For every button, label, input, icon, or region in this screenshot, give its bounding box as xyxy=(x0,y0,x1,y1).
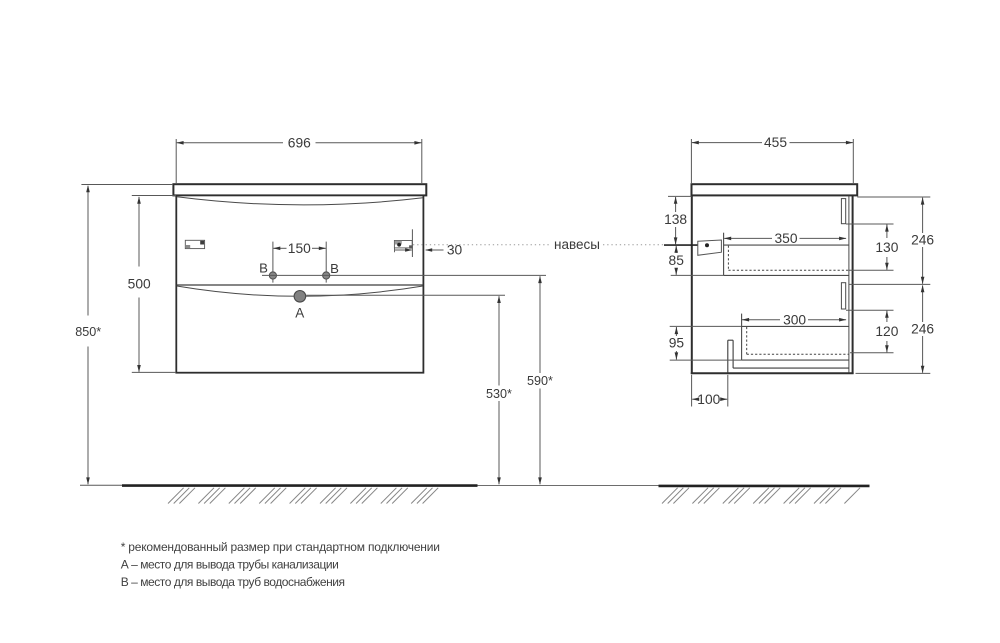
svg-text:300: 300 xyxy=(783,312,806,327)
svg-text:A: A xyxy=(295,306,304,321)
svg-text:455: 455 xyxy=(764,135,787,150)
svg-text:696: 696 xyxy=(288,135,311,150)
svg-text:138: 138 xyxy=(664,212,687,227)
svg-text:85: 85 xyxy=(669,253,685,268)
svg-text:150: 150 xyxy=(288,241,311,256)
svg-text:850*: 850* xyxy=(75,325,101,339)
svg-text:В – место для вывода труб водо: В – место для вывода труб водоснабжения xyxy=(121,575,345,589)
svg-text:95: 95 xyxy=(669,336,685,351)
svg-text:246: 246 xyxy=(911,232,934,247)
svg-text:А – место для вывода трубы кан: А – место для вывода трубы канализации xyxy=(121,558,339,572)
svg-text:навесы: навесы xyxy=(554,237,600,252)
svg-text:B: B xyxy=(330,261,339,276)
svg-text:130: 130 xyxy=(875,240,898,255)
svg-text:* рекомендованный размер при с: * рекомендованный размер при стандартном… xyxy=(121,540,440,554)
svg-text:530*: 530* xyxy=(486,387,512,401)
svg-text:350: 350 xyxy=(774,231,797,246)
svg-text:100: 100 xyxy=(697,392,720,407)
svg-text:500: 500 xyxy=(128,277,151,292)
svg-text:590*: 590* xyxy=(527,374,553,388)
svg-text:B: B xyxy=(259,261,268,276)
svg-text:120: 120 xyxy=(875,324,898,339)
svg-text:246: 246 xyxy=(911,321,934,336)
